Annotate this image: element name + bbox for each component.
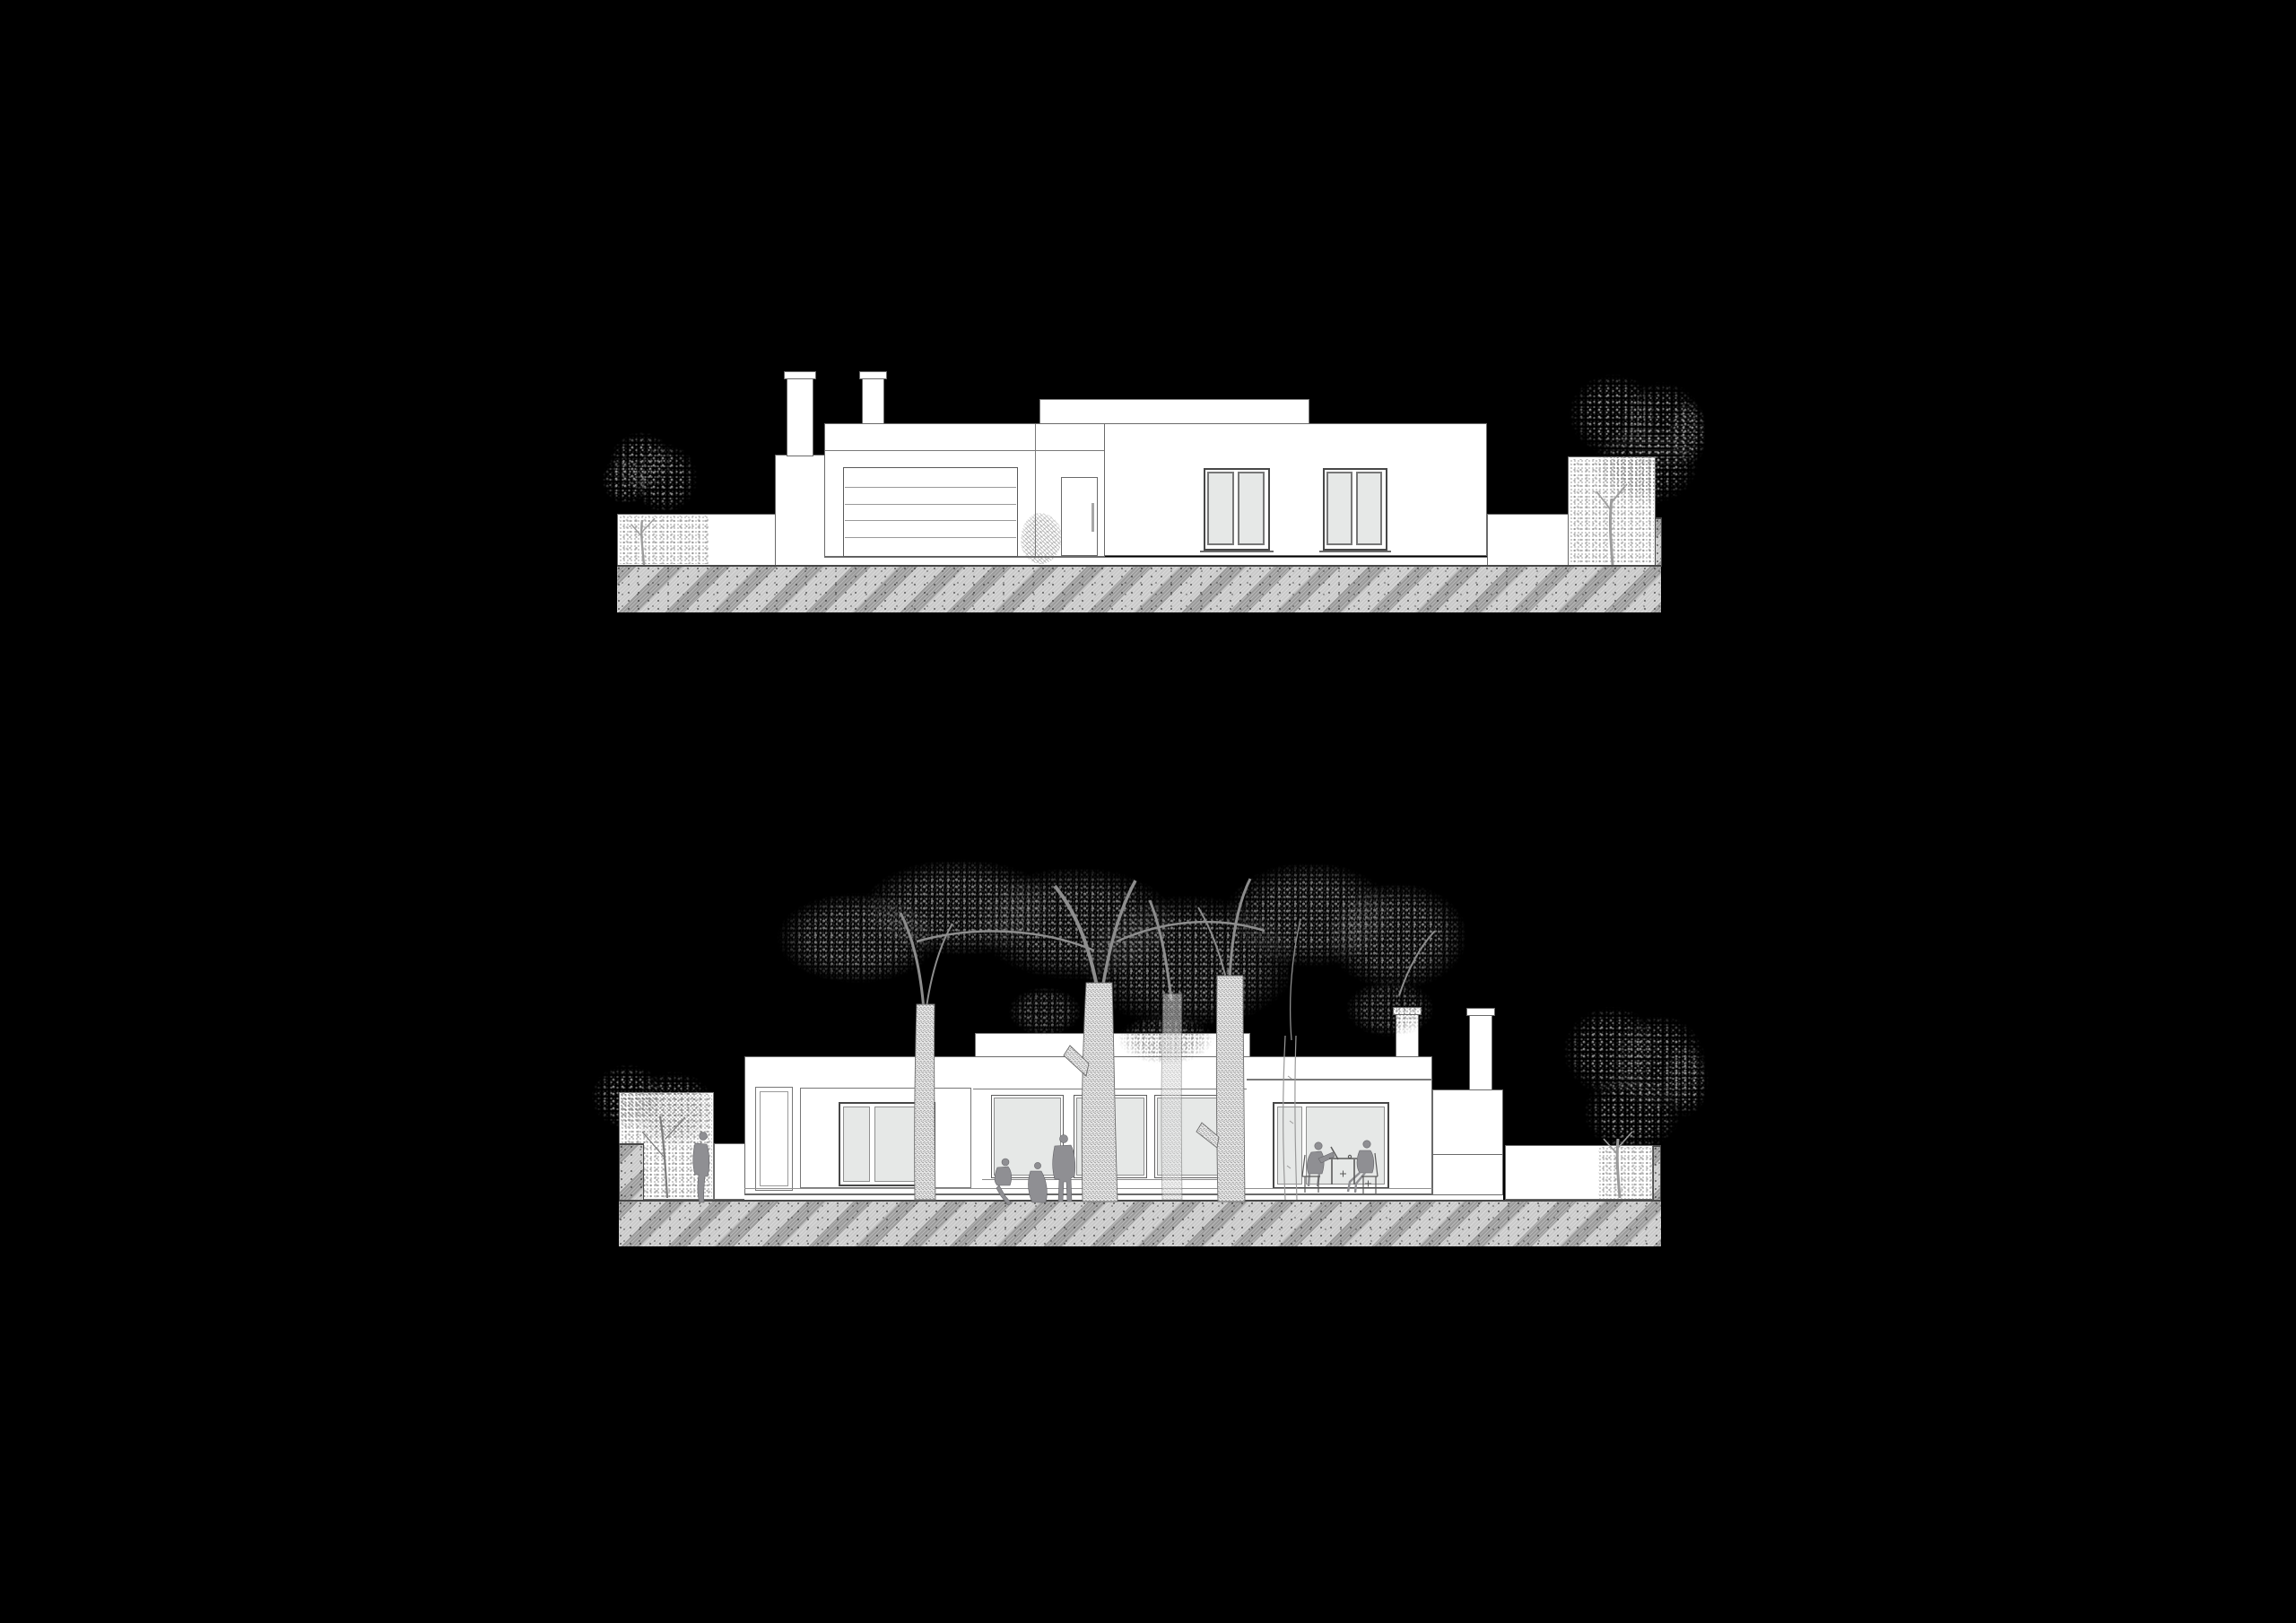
figure-standing-terrace — [1053, 1145, 1075, 1202]
pine-sapling — [1283, 1036, 1297, 1200]
tree-branch — [1612, 484, 1627, 502]
pine-branch-stub — [1196, 1123, 1219, 1148]
figure-crouching — [1034, 1162, 1040, 1168]
plus-mark — [1340, 1171, 1346, 1177]
tree-branch — [1596, 491, 1612, 511]
figure-diner — [1357, 1150, 1374, 1173]
figure-seated — [1002, 1159, 1009, 1166]
pine-trunk — [1082, 983, 1118, 1202]
pine-trunks — [915, 976, 1245, 1202]
upper-branch-sketch — [574, 341, 1731, 628]
pine-trunk — [1161, 994, 1182, 1200]
figure-standing-patio — [693, 1143, 709, 1202]
figure-seated — [995, 1167, 1012, 1185]
right-tree-trunk — [1604, 1132, 1632, 1198]
tree-branch — [641, 520, 644, 565]
lower-figure-layer — [574, 834, 1731, 1264]
patio-tree-branches — [642, 1116, 685, 1198]
figure-legs — [1309, 1173, 1365, 1193]
figure-standing-terrace — [1060, 1135, 1068, 1143]
figures — [693, 1133, 1374, 1205]
pine-trunk — [915, 1004, 935, 1200]
plus-mark — [1365, 1181, 1371, 1187]
figure-diner — [1363, 1141, 1370, 1148]
drawing-sheet — [0, 0, 2296, 1623]
cup — [1348, 1155, 1351, 1158]
figure-seated-legs — [996, 1185, 1012, 1205]
pine-trunk — [1216, 976, 1245, 1202]
figure-crouching — [1029, 1171, 1048, 1202]
tree-branch — [643, 518, 655, 531]
figure-standing-patio — [700, 1133, 708, 1141]
figure-reader — [1315, 1142, 1322, 1150]
